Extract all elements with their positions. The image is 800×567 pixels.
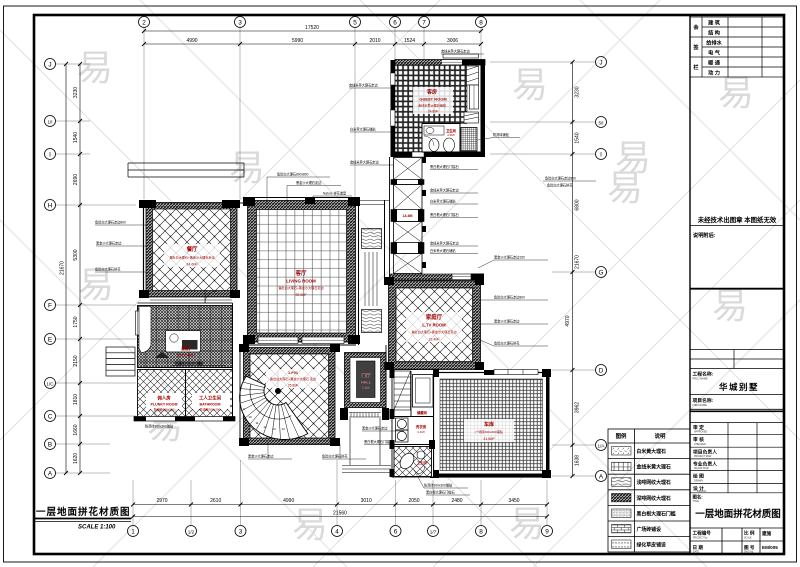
svg-text:金线米黄大理石走边: 金线米黄大理石走边 xyxy=(441,49,470,54)
svg-text:洗衣房: 洗衣房 xyxy=(416,424,427,429)
svg-text:3006: 3006 xyxy=(447,38,458,44)
svg-text:21670: 21670 xyxy=(60,261,66,275)
svg-text:19.4M²: 19.4M² xyxy=(428,338,440,342)
svg-text:GUEST ROOM: GUEST ROOM xyxy=(419,97,447,102)
svg-text:易: 易 xyxy=(718,72,754,113)
svg-text:鱼肚白大理石+黑金沙大理石 走边: 鱼肚白大理石+黑金沙大理石 走边 xyxy=(270,376,317,381)
svg-text:防滑砖300x300铺贴: 防滑砖300x300铺贴 xyxy=(424,483,453,488)
svg-text:LIVING ROOM: LIVING ROOM xyxy=(286,279,316,284)
svg-text:F: F xyxy=(48,302,52,309)
svg-text:Nature 拼花造型: Nature 拼花造型 xyxy=(323,191,347,196)
svg-text:3: 3 xyxy=(238,19,242,26)
svg-text:客厅: 客厅 xyxy=(296,269,307,277)
svg-text:建 筑: 建 筑 xyxy=(708,19,721,27)
svg-text:比 例: 比 例 xyxy=(744,530,755,537)
svg-text:DWG No.: DWG No. xyxy=(744,552,754,554)
svg-text:防滑砖300x300: 防滑砖300x300 xyxy=(200,407,221,412)
svg-text:暖 通: 暖 通 xyxy=(708,59,721,67)
svg-text:10: 10 xyxy=(248,415,252,419)
svg-text:MAJOR MGR: MAJOR MGR xyxy=(694,467,709,470)
svg-text:鱼肚白大理石走边800: 鱼肚白大理石走边800 xyxy=(95,220,126,225)
svg-text:2.6M²: 2.6M² xyxy=(362,386,370,390)
svg-text:浅啡网纹大理石: 浅啡网纹大理石 xyxy=(637,479,671,486)
svg-text:I: I xyxy=(49,151,51,158)
svg-text:动 力: 动 力 xyxy=(708,69,720,77)
svg-text:易: 易 xyxy=(712,285,748,326)
svg-text:1-F01: 1-F01 xyxy=(288,371,298,375)
svg-text:金线米黄大理石走边: 金线米黄大理石走边 xyxy=(430,241,459,246)
svg-text:3010: 3010 xyxy=(361,498,372,504)
svg-text:佣人房: 佣人房 xyxy=(156,395,171,402)
svg-text:G: G xyxy=(599,269,604,276)
svg-text:3962: 3962 xyxy=(575,402,581,413)
svg-text:J: J xyxy=(48,61,51,68)
svg-text:9: 9 xyxy=(545,528,549,535)
svg-text:金线米黄大理石铺贴: 金线米黄大理石铺贴 xyxy=(418,103,446,108)
svg-text:黑金沙大理石走边: 黑金沙大理石走边 xyxy=(248,454,274,459)
svg-text:1/A: 1/A xyxy=(598,443,606,448)
svg-text:黑金沙大理石走边: 黑金沙大理石走边 xyxy=(362,426,388,431)
svg-text:厨房: 厨房 xyxy=(181,345,191,352)
svg-text:21670: 21670 xyxy=(575,255,581,269)
svg-text:6800: 6800 xyxy=(575,199,581,210)
svg-text:易: 易 xyxy=(292,504,328,545)
svg-text:3230: 3230 xyxy=(575,86,581,97)
svg-text:7: 7 xyxy=(422,19,426,26)
svg-text:ITEM NAME: ITEM NAME xyxy=(693,403,708,407)
svg-text:鱼肚白大理石拼花: 鱼肚白大理石拼花 xyxy=(547,183,573,188)
svg-text:2: 2 xyxy=(142,19,146,26)
svg-text:SCALE 1:100: SCALE 1:100 xyxy=(78,525,116,531)
svg-text:白米黄大理石: 白米黄大理石 xyxy=(637,448,666,455)
svg-text:绿化草皮铺设: 绿化草皮铺设 xyxy=(637,542,666,549)
svg-text:41.6M²: 41.6M² xyxy=(483,437,495,441)
svg-text:5/I: 5/I xyxy=(598,120,603,125)
svg-text:PLUNKY ROOM: PLUNKY ROOM xyxy=(151,403,178,407)
svg-text:防滑砖300x300铺贴: 防滑砖300x300铺贴 xyxy=(145,424,174,429)
svg-text:C: C xyxy=(48,413,53,420)
svg-text:鱼肚白大理石走边800: 鱼肚白大理石走边800 xyxy=(494,295,525,300)
svg-text:鱼肚白大理石拼花: 鱼肚白大理石拼花 xyxy=(95,267,121,272)
svg-text:I: I xyxy=(600,151,602,158)
svg-text:签: 签 xyxy=(692,43,699,51)
svg-text:1810: 1810 xyxy=(73,394,79,405)
svg-text:2610: 2610 xyxy=(210,498,221,504)
svg-text:广场砖铺设: 广场砖铺设 xyxy=(637,526,662,533)
svg-text:会: 会 xyxy=(693,23,699,31)
svg-text:鱼肚白大理石拼花: 鱼肚白大理石拼花 xyxy=(494,341,520,346)
svg-text:白米黄大理石铺贴: 白米黄大理石铺贴 xyxy=(430,248,456,253)
svg-text:1524: 1524 xyxy=(404,38,415,44)
svg-text:5300: 5300 xyxy=(73,249,79,260)
svg-text:黑白根大理石门槛石: 黑白根大理石门槛石 xyxy=(426,490,455,495)
svg-text:工程编号: 工程编号 xyxy=(693,530,712,537)
svg-text:1660: 1660 xyxy=(73,424,79,435)
svg-text:5: 5 xyxy=(353,19,357,26)
svg-text:24.8M²: 24.8M² xyxy=(428,110,439,114)
svg-text:A: A xyxy=(48,470,53,477)
svg-text:2010: 2010 xyxy=(369,38,380,44)
svg-text:易: 易 xyxy=(229,147,265,188)
svg-text:2480: 2480 xyxy=(451,498,462,504)
svg-text:鱼肚白大理石+黑金沙大理石走边: 鱼肚白大理石+黑金沙大理石走边 xyxy=(278,285,324,290)
svg-text:2970: 2970 xyxy=(156,498,167,504)
svg-text:储藏间: 储藏间 xyxy=(417,410,428,415)
svg-text:栏: 栏 xyxy=(693,63,699,71)
svg-text:TITLE: TITLE xyxy=(693,500,700,503)
svg-text:H: H xyxy=(48,202,53,209)
svg-text:深啡网纹大理石: 深啡网纹大理石 xyxy=(637,495,671,502)
svg-text:4.1M²: 4.1M² xyxy=(417,430,425,434)
svg-text:日 期: 日 期 xyxy=(693,544,704,551)
svg-text:1/I: 1/I xyxy=(47,119,52,124)
svg-text:1/C: 1/C xyxy=(46,381,54,386)
svg-text:4970: 4970 xyxy=(565,315,571,326)
svg-text:金线米黄大理石: 金线米黄大理石 xyxy=(636,464,671,471)
svg-text:35.8M²: 35.8M² xyxy=(295,293,307,297)
svg-text:1750: 1750 xyxy=(73,316,79,327)
svg-text:金线米黄大理石走边: 金线米黄大理石走边 xyxy=(350,160,379,165)
svg-text:工人卫生间: 工人卫生间 xyxy=(199,395,222,402)
svg-text:黑金沙大理石走边: 黑金沙大理石走边 xyxy=(494,319,520,324)
svg-text:25.8M²: 25.8M² xyxy=(288,384,299,388)
svg-text:1620: 1620 xyxy=(73,453,79,464)
svg-text:2690: 2690 xyxy=(73,174,79,185)
svg-text:17520: 17520 xyxy=(305,25,319,31)
svg-text:4990: 4990 xyxy=(283,498,294,504)
svg-text:说明附后:: 说明附后: xyxy=(693,231,716,239)
svg-text:2150: 2150 xyxy=(73,355,79,366)
svg-text:DRAWN: DRAWN xyxy=(694,479,703,482)
svg-text:1/7: 1/7 xyxy=(430,529,437,534)
svg-text:黑白根大理石门槛石: 黑白根大理石门槛石 xyxy=(364,439,393,444)
svg-text:12: 12 xyxy=(263,425,267,429)
svg-text:KITCHEN: KITCHEN xyxy=(177,353,195,358)
svg-text:说明: 说明 xyxy=(655,432,666,440)
svg-text:1540: 1540 xyxy=(73,132,79,143)
svg-text:客房: 客房 xyxy=(426,89,437,96)
svg-text:鱼肚白大理石+黑金沙大理石走边: 鱼肚白大理石+黑金沙大理石走边 xyxy=(411,329,457,334)
svg-text:项目名称:: 项目名称: xyxy=(693,397,714,404)
svg-text:防滑砖300x300铺贴: 防滑砖300x300铺贴 xyxy=(175,361,204,366)
svg-text:1: 1 xyxy=(131,528,135,535)
svg-text:鱼肚白大理石拼花: 鱼肚白大理石拼花 xyxy=(322,454,348,459)
svg-text:3450: 3450 xyxy=(508,498,519,504)
svg-text:金线米黄大理石走边: 金线米黄大理石走边 xyxy=(349,83,378,88)
svg-text:1540: 1540 xyxy=(575,132,581,143)
svg-text:A: A xyxy=(599,473,604,480)
svg-text:24.6M²: 24.6M² xyxy=(186,263,198,267)
svg-text:图例: 图例 xyxy=(616,432,627,440)
svg-text:白米黄大理石铺贴: 白米黄大理石铺贴 xyxy=(430,199,456,204)
svg-text:PROJECT MGR: PROJECT MGR xyxy=(694,455,712,458)
svg-text:给排水: 给排水 xyxy=(706,39,722,47)
svg-text:2050: 2050 xyxy=(408,498,419,504)
svg-text:防滑砖300x300: 防滑砖300x300 xyxy=(154,407,175,412)
svg-text:DATE: DATE xyxy=(693,551,699,554)
svg-text:黑白根大理石门槛: 黑白根大理石门槛 xyxy=(637,510,676,517)
svg-text:1/2: 1/2 xyxy=(188,529,195,534)
svg-text:D: D xyxy=(599,367,604,374)
svg-text:黑金沙大理石走边: 黑金沙大理石走边 xyxy=(96,241,122,246)
svg-text:1A.6M: 1A.6M xyxy=(403,214,413,218)
svg-text:工程名称:: 工程名称: xyxy=(693,371,714,378)
svg-text:广场砖300x300铺贴: 广场砖300x300铺贴 xyxy=(475,429,502,434)
svg-text:鱼肚白大理石+黑金沙大理石走边: 鱼肚白大理石+黑金沙大理石走边 xyxy=(169,255,215,260)
svg-text:易: 易 xyxy=(77,47,113,88)
svg-text:一层地面拼花材质图: 一层地面拼花材质图 xyxy=(36,506,131,518)
svg-text:11: 11 xyxy=(255,421,258,425)
svg-text:易: 易 xyxy=(607,167,643,208)
svg-text:PROJECT No.: PROJECT No. xyxy=(693,538,708,540)
svg-text:B: B xyxy=(48,441,52,448)
svg-text:黑金沙大理石走边: 黑金沙大理石走边 xyxy=(296,180,322,185)
svg-text:5990: 5990 xyxy=(292,38,303,44)
svg-text:E: E xyxy=(48,336,52,343)
svg-text:鱼肚白大理石走边800: 鱼肚白大理石走边800 xyxy=(545,176,576,181)
svg-text:卫生间: 卫生间 xyxy=(417,460,427,465)
svg-text:4: 4 xyxy=(335,528,339,535)
svg-text:13: 13 xyxy=(272,427,276,431)
svg-text:4990: 4990 xyxy=(186,38,197,44)
svg-text:图 号: 图 号 xyxy=(744,544,755,551)
svg-text:L.TV ROOM: L.TV ROOM xyxy=(422,323,446,328)
svg-text:家庭厅: 家庭厅 xyxy=(426,313,443,321)
svg-text:门厅: 门厅 xyxy=(361,372,371,379)
svg-text:餐厅: 餐厅 xyxy=(187,245,198,253)
svg-text:鱼肚白大理石800x800: 鱼肚白大理石800x800 xyxy=(277,172,309,177)
svg-text:黑白根大理石门槛石: 黑白根大理石门槛石 xyxy=(430,164,459,169)
svg-text:8: 8 xyxy=(479,528,483,535)
svg-text:易: 易 xyxy=(512,64,548,105)
svg-text:华城别墅: 华城别墅 xyxy=(719,382,759,392)
svg-text:白米黄大理石铺贴: 白米黄大理石铺贴 xyxy=(350,127,376,132)
svg-text:结 构: 结 构 xyxy=(708,29,720,37)
svg-text:SCALE: SCALE xyxy=(744,537,752,540)
svg-text:APPROVED: APPROVED xyxy=(694,431,708,434)
svg-text:4.9M²: 4.9M² xyxy=(447,133,455,137)
svg-text:一层地面拼花材质图: 一层地面拼花材质图 xyxy=(695,508,781,520)
svg-text:电 气: 电 气 xyxy=(708,49,721,57)
svg-text:3230: 3230 xyxy=(73,87,79,98)
svg-text:HALL: HALL xyxy=(361,381,372,385)
svg-text:8: 8 xyxy=(479,19,483,26)
svg-text:14: 14 xyxy=(281,427,285,431)
svg-text:BATHROOM: BATHROOM xyxy=(200,403,221,407)
svg-text:防滑砖铺贴: 防滑砖铺贴 xyxy=(493,132,510,137)
svg-text:易: 易 xyxy=(509,503,545,544)
svg-text:金线米黄大理石走边: 金线米黄大理石走边 xyxy=(430,188,459,193)
svg-text:未经技术出图章 本图纸无效: 未经技术出图章 本图纸无效 xyxy=(697,215,777,224)
svg-text:黑白根大理石门槛石: 黑白根大理石门槛石 xyxy=(430,212,459,217)
svg-text:J: J xyxy=(599,59,602,66)
svg-text:21560: 21560 xyxy=(333,511,347,517)
svg-text:车库: 车库 xyxy=(484,421,494,428)
svg-text:DESIGN: DESIGN xyxy=(697,490,706,493)
svg-text:黑金沙大理石走边150: 黑金沙大理石走边150 xyxy=(494,255,525,260)
svg-text:6: 6 xyxy=(393,19,397,26)
svg-text:CHECKED: CHECKED xyxy=(694,443,706,446)
svg-text:建施: 建施 xyxy=(761,530,772,537)
svg-text:PROJ NAME: PROJ NAME xyxy=(693,377,708,381)
svg-text:1638: 1638 xyxy=(575,455,581,466)
svg-text:6: 6 xyxy=(394,528,398,535)
svg-text:EM/005: EM/005 xyxy=(762,545,778,550)
svg-text:3: 3 xyxy=(239,528,243,535)
